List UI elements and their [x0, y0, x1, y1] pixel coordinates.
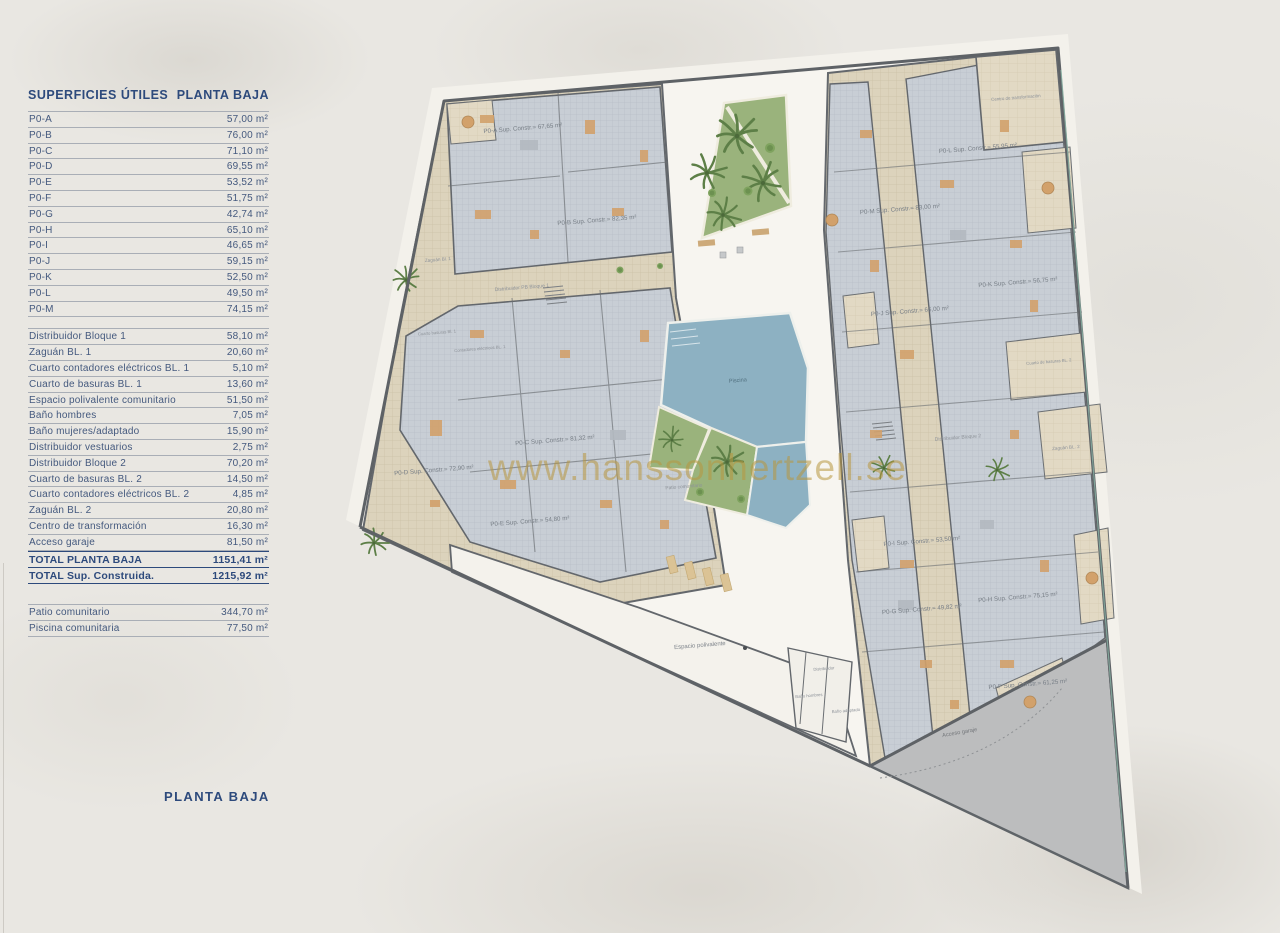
- row-label: Cuarto contadores eléctricos BL. 1: [29, 363, 189, 375]
- table-row: Zaguán BL. 1 20,60 m²: [28, 345, 269, 361]
- bush-icon: [696, 488, 704, 496]
- row-value: 14,50 m²: [227, 474, 268, 486]
- row-label: Patio comunitario: [29, 607, 110, 619]
- table-row: P0-C 71,10 m²: [28, 144, 269, 160]
- row-value: 77,50 m²: [227, 623, 268, 635]
- surfaces-table: SUPERFICIES ÚTILES PLANTA BAJA P0-A 57,0…: [28, 88, 269, 637]
- row-label: Cuarto contadores eléctricos BL. 2: [29, 489, 189, 501]
- table-row: Baño hombres 7,05 m²: [28, 408, 269, 424]
- row-value: 52,50 m²: [227, 272, 268, 284]
- row-label: Cuarto de basuras BL. 2: [29, 474, 142, 486]
- bush-icon: [617, 267, 624, 274]
- table-row: P0-K 52,50 m²: [28, 270, 269, 286]
- page-edge-line: [3, 563, 4, 933]
- planter: [737, 247, 743, 253]
- row-value: 51,75 m²: [227, 193, 268, 205]
- total-row: TOTAL Sup. Construida. 1215,92 m²: [28, 568, 269, 584]
- row-label: P0-A: [29, 114, 52, 126]
- row-label: Piscina comunitaria: [29, 623, 120, 635]
- watermark: www.hanssonhertzell.se: [488, 447, 907, 489]
- row-value: 65,10 m²: [227, 225, 268, 237]
- row-label: TOTAL PLANTA BAJA: [29, 554, 142, 566]
- bush-icon: [708, 189, 716, 197]
- row-value: 344,70 m²: [221, 607, 268, 619]
- units-section: P0-A 57,00 m² P0-B 76,00 m² P0-C 71,10 m…: [28, 111, 269, 317]
- row-label: Espacio polivalente comunitario: [29, 395, 176, 407]
- row-label: Baño hombres: [29, 410, 96, 422]
- row-label: TOTAL Sup. Construida.: [29, 570, 154, 582]
- table-header-floor: PLANTA BAJA: [177, 88, 269, 102]
- commons-section: Distribuidor Bloque 1 58,10 m² Zaguán BL…: [28, 328, 269, 550]
- row-value: 13,60 m²: [227, 379, 268, 391]
- table-row: Baño mujeres/adaptado 15,90 m²: [28, 424, 269, 440]
- table-row: P0-A 57,00 m²: [28, 112, 269, 128]
- table-row: P0-G 42,74 m²: [28, 207, 269, 223]
- row-value: 58,10 m²: [227, 331, 268, 343]
- plan-sheet: SUPERFICIES ÚTILES PLANTA BAJA P0-A 57,0…: [0, 0, 1280, 933]
- table-row: P0-H 65,10 m²: [28, 223, 269, 239]
- row-label: P0-C: [29, 146, 53, 158]
- bush-icon: [744, 187, 753, 196]
- totals-section: TOTAL PLANTA BAJA 1151,41 m² TOTAL Sup. …: [28, 551, 269, 585]
- row-value: 70,20 m²: [227, 458, 268, 470]
- row-label: Centro de transformación: [29, 521, 147, 533]
- transformer-room: [976, 50, 1064, 150]
- planter: [720, 252, 726, 258]
- table-header-title: SUPERFICIES ÚTILES: [28, 88, 168, 102]
- table-row: P0-D 69,55 m²: [28, 159, 269, 175]
- table-row: Distribuidor vestuarios 2,75 m²: [28, 440, 269, 456]
- row-value: 51,50 m²: [227, 395, 268, 407]
- row-label: P0-D: [29, 161, 53, 173]
- total-row: TOTAL PLANTA BAJA 1151,41 m²: [28, 552, 269, 568]
- row-label: Distribuidor Bloque 1: [29, 331, 126, 343]
- table-row: Distribuidor Bloque 2 70,20 m²: [28, 456, 269, 472]
- row-value: 69,55 m²: [227, 161, 268, 173]
- row-label: Zaguán BL. 1: [29, 347, 91, 359]
- row-label: Distribuidor Bloque 2: [29, 458, 126, 470]
- table-row: P0-M 74,15 m²: [28, 302, 269, 318]
- row-label: P0-I: [29, 240, 48, 252]
- row-value: 2,75 m²: [233, 442, 268, 454]
- row-label: P0-G: [29, 209, 53, 221]
- row-label: Zaguán BL. 2: [29, 505, 91, 517]
- row-value: 59,15 m²: [227, 256, 268, 268]
- row-label: P0-E: [29, 177, 52, 189]
- table-row: Cuarto de basuras BL. 2 14,50 m²: [28, 472, 269, 488]
- row-label: Distribuidor vestuarios: [29, 442, 133, 454]
- row-value: 5,10 m²: [233, 363, 268, 375]
- row-value: 81,50 m²: [227, 537, 268, 549]
- table-row: Piscina comunitaria 77,50 m²: [28, 621, 269, 637]
- bush-icon: [657, 263, 663, 269]
- bush-icon: [765, 143, 775, 153]
- table-row: Zaguán BL. 2 20,80 m²: [28, 503, 269, 519]
- row-label: P0-H: [29, 225, 53, 237]
- row-label: P0-B: [29, 130, 52, 142]
- row-value: 16,30 m²: [227, 521, 268, 533]
- table-row: P0-F 51,75 m²: [28, 191, 269, 207]
- table-row: Cuarto de basuras BL. 1 13,60 m²: [28, 377, 269, 393]
- row-value: 57,00 m²: [227, 114, 268, 126]
- row-value: 20,80 m²: [227, 505, 268, 517]
- row-label: P0-L: [29, 288, 51, 300]
- table-row: Centro de transformación 16,30 m²: [28, 519, 269, 535]
- row-value: 74,15 m²: [227, 304, 268, 316]
- row-label: Baño mujeres/adaptado: [29, 426, 139, 438]
- table-row: Cuarto contadores eléctricos BL. 1 5,10 …: [28, 361, 269, 377]
- row-value: 53,52 m²: [227, 177, 268, 189]
- row-value: 15,90 m²: [227, 426, 268, 438]
- table-row: P0-I 46,65 m²: [28, 238, 269, 254]
- plan-title: PLANTA BAJA: [164, 789, 270, 804]
- trash-room-2: [1006, 333, 1087, 400]
- table-row: Distribuidor Bloque 1 58,10 m²: [28, 329, 269, 345]
- table-header: SUPERFICIES ÚTILES PLANTA BAJA: [28, 88, 269, 102]
- row-value: 42,74 m²: [227, 209, 268, 221]
- table-row: Cuarto contadores eléctricos BL. 2 4,85 …: [28, 487, 269, 503]
- row-value: 46,65 m²: [227, 240, 268, 252]
- row-value: 1151,41 m²: [213, 554, 268, 566]
- row-value: 7,05 m²: [233, 410, 268, 422]
- row-label: P0-K: [29, 272, 52, 284]
- row-value: 49,50 m²: [227, 288, 268, 300]
- row-label: Acceso garaje: [29, 537, 95, 549]
- column: [743, 646, 747, 650]
- block2-patio-1: [843, 292, 879, 348]
- row-value: 1215,92 m²: [212, 570, 268, 582]
- row-value: 4,85 m²: [233, 489, 268, 501]
- table-row: P0-B 76,00 m²: [28, 128, 269, 144]
- row-label: P0-F: [29, 193, 51, 205]
- row-value: 71,10 m²: [227, 146, 268, 158]
- table-row: Patio comunitario 344,70 m²: [28, 605, 269, 621]
- row-label: P0-M: [29, 304, 54, 316]
- zaguan2-room: [1038, 404, 1107, 479]
- table-row: P0-J 59,15 m²: [28, 254, 269, 270]
- row-label: P0-J: [29, 256, 50, 268]
- row-label: Cuarto de basuras BL. 1: [29, 379, 142, 391]
- table-row: P0-L 49,50 m²: [28, 286, 269, 302]
- row-value: 76,00 m²: [227, 130, 268, 142]
- outdoor-section: Patio comunitario 344,70 m² Piscina comu…: [28, 604, 269, 637]
- table-row: Espacio polivalente comunitario 51,50 m²: [28, 393, 269, 409]
- table-row: Acceso garaje 81,50 m²: [28, 535, 269, 551]
- table-row: P0-E 53,52 m²: [28, 175, 269, 191]
- bush-icon: [737, 495, 745, 503]
- row-value: 20,60 m²: [227, 347, 268, 359]
